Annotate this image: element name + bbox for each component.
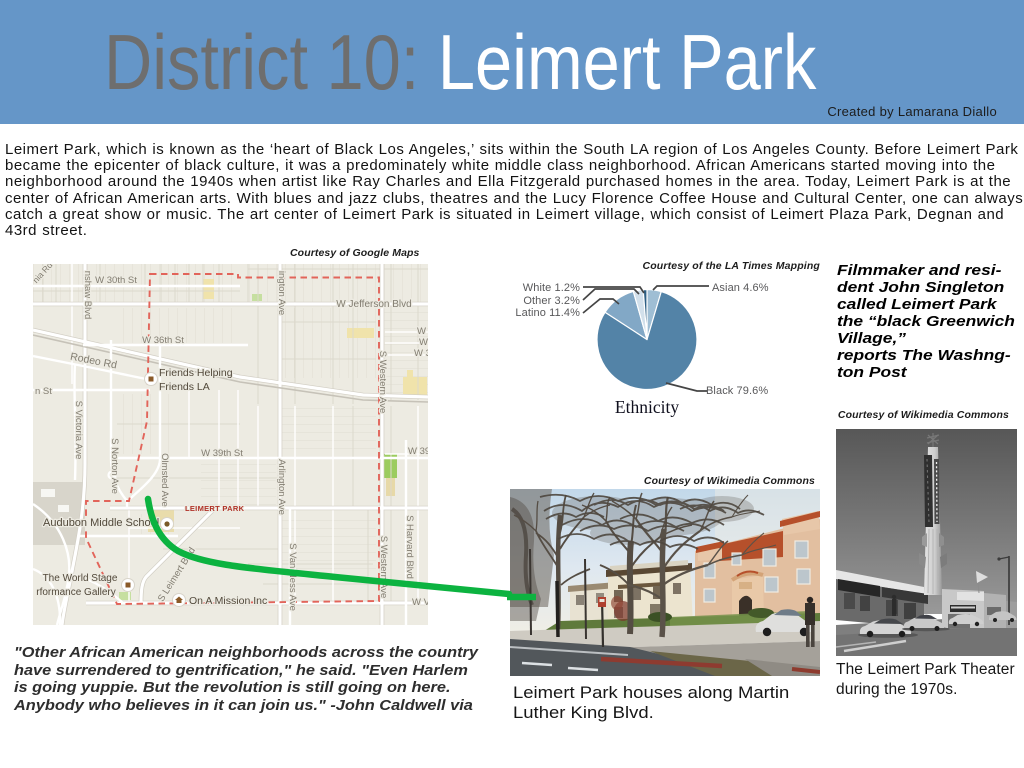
- svg-text:S Western Ave: S Western Ave: [377, 351, 388, 414]
- svg-text:The World Stage: The World Stage: [43, 573, 118, 584]
- svg-text:W: W: [419, 337, 428, 348]
- svg-text:W 3: W 3: [414, 348, 428, 359]
- svg-text:W: W: [417, 326, 426, 337]
- svg-text:W 36th St: W 36th St: [142, 335, 184, 346]
- svg-text:Friends Helping: Friends Helping: [159, 367, 233, 379]
- svg-text:W 39th St: W 39th St: [201, 448, 243, 459]
- svg-text:S Western Ave: S Western Ave: [378, 536, 389, 599]
- svg-text:Friends LA: Friends LA: [159, 381, 210, 393]
- svg-text:S Van Ness Ave: S Van Ness Ave: [287, 543, 298, 611]
- svg-text:S Harvard Blvd: S Harvard Blvd: [404, 515, 415, 579]
- svg-text:ington Ave: ington Ave: [276, 271, 287, 315]
- svg-text:LEIMERT PARK: LEIMERT PARK: [185, 504, 245, 513]
- svg-text:On A Mission Inc: On A Mission Inc: [189, 595, 267, 607]
- svg-text:n St: n St: [35, 386, 52, 397]
- svg-text:W V: W V: [412, 597, 428, 608]
- svg-text:Olmsted Ave: Olmsted Ave: [159, 453, 170, 507]
- svg-text:W 30th St: W 30th St: [95, 275, 137, 286]
- svg-text:S Victoria Ave: S Victoria Ave: [73, 401, 84, 460]
- svg-text:W 39: W 39: [408, 446, 428, 457]
- svg-text:rformance Gallery: rformance Gallery: [36, 587, 115, 598]
- svg-text:Audubon Middle School: Audubon Middle School: [43, 517, 159, 529]
- svg-text:nshaw Blvd: nshaw Blvd: [82, 271, 93, 320]
- svg-text:S Norton Ave: S Norton Ave: [109, 438, 120, 494]
- svg-text:Arlington Ave: Arlington Ave: [276, 459, 287, 515]
- svg-text:W Jefferson Blvd: W Jefferson Blvd: [336, 299, 411, 310]
